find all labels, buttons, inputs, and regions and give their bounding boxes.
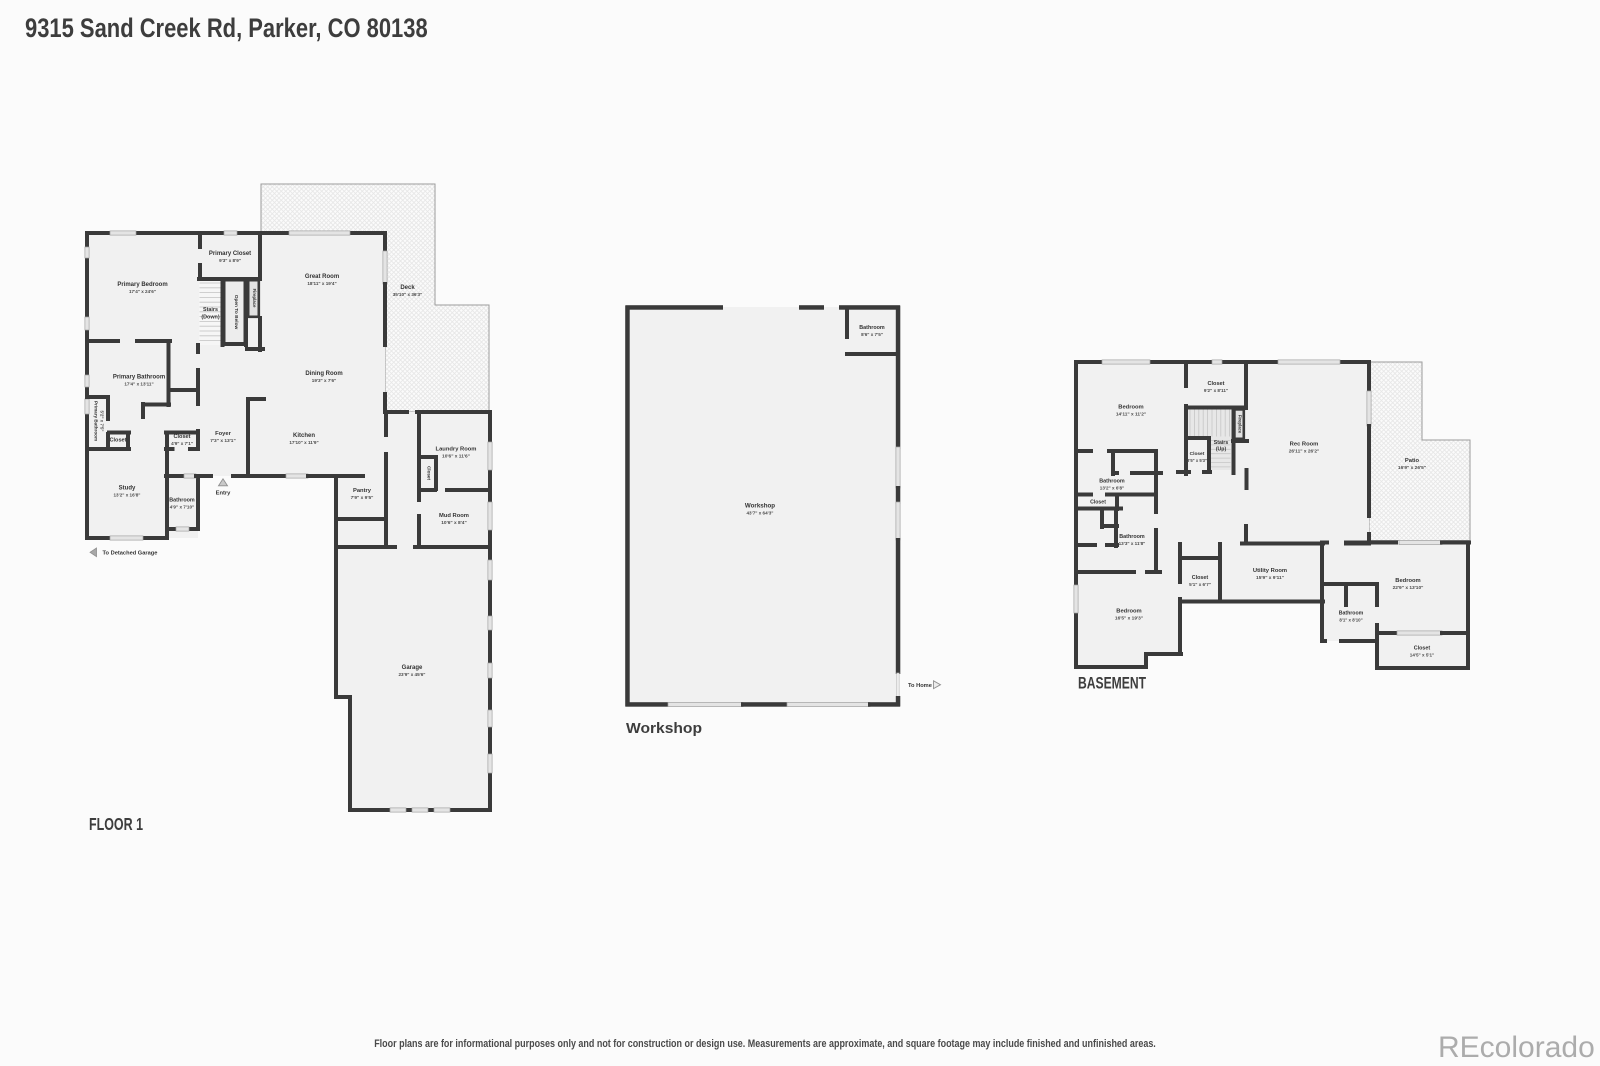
svg-text:Bathroom: Bathroom: [1339, 611, 1364, 617]
svg-text:Fireplace: Fireplace: [1237, 415, 1242, 434]
svg-text:5'1" x 6'7": 5'1" x 6'7": [1189, 582, 1211, 587]
svg-text:Utility Room: Utility Room: [1253, 568, 1287, 574]
svg-text:5'2" x 7'5": 5'2" x 7'5": [99, 411, 104, 432]
svg-text:To Detached Garage: To Detached Garage: [103, 551, 158, 557]
svg-text:17'4" x 24'6": 17'4" x 24'6": [129, 289, 156, 294]
svg-text:Closet: Closet: [427, 466, 432, 481]
svg-text:Closet: Closet: [1207, 381, 1224, 387]
svg-text:Fireplace: Fireplace: [252, 289, 257, 308]
svg-text:Bathroom: Bathroom: [169, 498, 195, 504]
svg-text:Bedroom: Bedroom: [1116, 609, 1141, 615]
svg-text:26'11" x 26'2": 26'11" x 26'2": [1289, 448, 1320, 454]
svg-text:FLOOR 1: FLOOR 1: [89, 814, 143, 834]
svg-text:Kitchen: Kitchen: [293, 433, 315, 439]
svg-text:4'9" x 7'10": 4'9" x 7'10": [170, 504, 194, 509]
svg-text:Closet: Closet: [1190, 451, 1205, 457]
svg-text:Garage: Garage: [402, 665, 423, 671]
svg-text:Rec Room: Rec Room: [1290, 442, 1319, 448]
svg-text:Bedroom: Bedroom: [1118, 405, 1143, 411]
svg-text:Closet: Closet: [173, 434, 190, 440]
svg-text:(Down): (Down): [201, 315, 219, 321]
svg-text:4'9" x 7'1": 4'9" x 7'1": [171, 441, 193, 446]
svg-text:14'5" x 5'1": 14'5" x 5'1": [1410, 652, 1434, 657]
svg-text:10'6" x 8'4": 10'6" x 8'4": [441, 520, 467, 526]
svg-text:16'5" x 19'3": 16'5" x 19'3": [1115, 615, 1143, 621]
svg-text:23'9" x 45'6": 23'9" x 45'6": [399, 672, 426, 677]
svg-text:14'11" x 11'2": 14'11" x 11'2": [1116, 411, 1146, 417]
svg-text:Foyer: Foyer: [215, 431, 232, 437]
svg-text:7'3" x 13'1": 7'3" x 13'1": [210, 438, 236, 444]
svg-text:Closet: Closet: [1090, 500, 1106, 506]
svg-text:17'4" x 13'11": 17'4" x 13'11": [124, 381, 153, 386]
svg-text:19'3" x 7'6": 19'3" x 7'6": [312, 378, 336, 383]
svg-text:Open To Below: Open To Below: [233, 295, 239, 330]
svg-text:Stairs: Stairs: [1214, 440, 1229, 446]
svg-text:To Home: To Home: [908, 683, 932, 689]
svg-text:Closet: Closet: [1192, 575, 1209, 581]
svg-text:43'7" x 64'3": 43'7" x 64'3": [747, 510, 774, 515]
svg-text:Pantry: Pantry: [353, 488, 372, 494]
svg-text:10'6" x 11'6": 10'6" x 11'6": [442, 453, 470, 459]
svg-text:Bathroom: Bathroom: [1099, 479, 1125, 485]
svg-text:Primary Bedroom: Primary Bedroom: [117, 282, 167, 288]
svg-text:Primary Bathroom: Primary Bathroom: [94, 401, 99, 441]
svg-text:Patio: Patio: [1405, 458, 1420, 464]
svg-text:Dining Room: Dining Room: [305, 371, 342, 377]
svg-text:16'9" x 26'5": 16'9" x 26'5": [1398, 465, 1426, 471]
svg-text:Primary Closet: Primary Closet: [209, 251, 251, 257]
svg-text:3'5" x 5'3": 3'5" x 5'3": [1187, 458, 1207, 463]
svg-text:7'9" x 9'5": 7'9" x 9'5": [351, 495, 374, 501]
svg-text:Closet: Closet: [109, 438, 126, 444]
svg-text:Deck: Deck: [400, 285, 415, 291]
svg-text:Study: Study: [119, 486, 136, 492]
svg-text:Workshop: Workshop: [626, 721, 702, 737]
svg-text:Bathroom: Bathroom: [1119, 534, 1145, 540]
svg-text:9'3" x 8'9": 9'3" x 8'9": [219, 258, 241, 263]
svg-text:18'11" x 19'4": 18'11" x 19'4": [307, 281, 336, 286]
svg-text:Mud Room: Mud Room: [439, 513, 469, 519]
svg-text:35'10" x 36'3": 35'10" x 36'3": [393, 292, 423, 297]
svg-text:9'2" x 8'11": 9'2" x 8'11": [1204, 388, 1228, 393]
svg-text:(Up): (Up): [1216, 447, 1227, 453]
svg-text:13'2" x 16'8": 13'2" x 16'8": [114, 492, 141, 497]
svg-text:Workshop: Workshop: [745, 503, 775, 510]
svg-text:Entry: Entry: [216, 491, 232, 497]
svg-text:8'6" x 7'5": 8'6" x 7'5": [861, 332, 883, 337]
svg-text:Bedroom: Bedroom: [1395, 578, 1420, 584]
svg-text:22'9" x 13'10": 22'9" x 13'10": [1393, 585, 1424, 591]
svg-text:Bathroom: Bathroom: [859, 325, 885, 331]
svg-text:Stairs: Stairs: [203, 307, 218, 313]
svg-text:Laundry Room: Laundry Room: [436, 447, 477, 453]
svg-text:13'2" x 6'8": 13'2" x 6'8": [1100, 485, 1124, 490]
svg-text:8'1" x 8'10": 8'1" x 8'10": [1339, 617, 1362, 622]
svg-text:15'9" x 9'11": 15'9" x 9'11": [1256, 575, 1284, 581]
svg-text:BASEMENT: BASEMENT: [1078, 675, 1146, 693]
svg-text:17'10" x 11'9": 17'10" x 11'9": [289, 440, 318, 445]
svg-text:Closet: Closet: [1414, 646, 1431, 652]
svg-text:Primary Bathroom: Primary Bathroom: [113, 375, 165, 381]
svg-text:Great Room: Great Room: [305, 274, 339, 280]
svg-text:13'3" x 11'8": 13'3" x 11'8": [1119, 541, 1146, 546]
